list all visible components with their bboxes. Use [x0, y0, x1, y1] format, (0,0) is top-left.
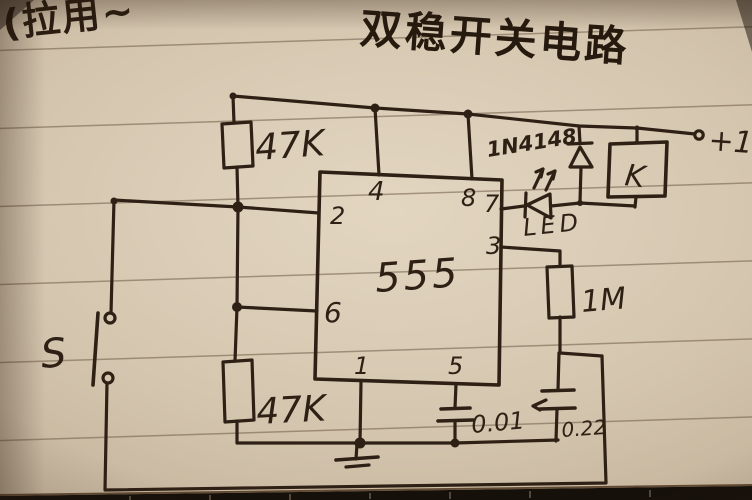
wire-r2-top-stub	[235, 307, 237, 361]
circuit-schematic: 47K 47K 1M 555 2 4 8 7 3 6 1 5	[0, 0, 752, 500]
ground-bar-1	[336, 457, 378, 460]
ic-pin3-label: 3	[486, 232, 501, 260]
switch-lever	[93, 313, 98, 385]
resistor-r1-label: 47K	[254, 123, 328, 169]
resistor-r1-body	[222, 122, 253, 168]
resistor-r2: 47K	[223, 360, 329, 433]
c1-plate-top	[441, 408, 470, 409]
wire-pin1-drop	[360, 381, 361, 443]
diode-triangle	[570, 147, 592, 167]
junction-dot	[355, 438, 366, 449]
led-label: LED	[522, 208, 584, 242]
junction-dot	[464, 110, 473, 119]
junction-dot	[451, 439, 460, 448]
ic-pin6-label: 6	[324, 296, 342, 329]
diode-bottom-stub	[580, 167, 581, 202]
junction-dot	[233, 202, 244, 213]
diode-label: 1N4148	[485, 124, 578, 162]
push-switch: S	[39, 313, 115, 385]
led: LED	[501, 169, 635, 242]
resistor-r3: 1M	[547, 266, 628, 320]
c2-plate-top	[542, 390, 574, 391]
junction-dot	[577, 200, 583, 206]
corner-shadow-top-right	[736, 0, 752, 52]
wire-pin3-to-r3	[501, 247, 560, 266]
led-wire-out	[551, 203, 635, 206]
resistor-r3-body	[547, 266, 574, 318]
diode-top-stub	[579, 126, 580, 143]
ic-pin5-label: 5	[448, 352, 463, 380]
notebook-page: (拉用~ 双稳开关电路 47K	[0, 0, 752, 500]
wire-switch-to-node	[111, 200, 238, 313]
junction-dot	[635, 126, 640, 131]
wire-node-to-pin6	[237, 307, 317, 311]
ic-pin8-label: 8	[461, 184, 476, 212]
wire-pin5-drop	[455, 384, 456, 408]
wire-pin8-drop	[468, 114, 472, 179]
wire-node-vertical	[237, 207, 238, 307]
switch-top-terminal	[105, 313, 115, 323]
junction-dot	[230, 93, 237, 100]
junction-dot	[111, 198, 118, 205]
supply-terminal-circle	[695, 131, 703, 139]
ground-bar-2	[346, 465, 369, 467]
supply-terminal: +12	[695, 123, 752, 162]
ic-555: 555 2 4 8 7 3 6 1 5	[315, 172, 502, 385]
c2-bottom-stub	[556, 409, 557, 441]
wire-r1-bottom-stub	[237, 167, 238, 207]
wire-node-to-pin2	[238, 207, 319, 213]
wire-r1-top-stub	[233, 96, 234, 123]
supply-label: +12	[707, 123, 752, 162]
wire-pin4-drop	[375, 108, 379, 175]
resistor-r1: 47K	[222, 122, 328, 169]
switch-label: S	[39, 330, 68, 378]
resistor-r2-body	[223, 360, 254, 422]
ic-pin1-label: 1	[354, 352, 369, 380]
ic-555-label: 555	[373, 250, 461, 302]
c2-label: 0.22	[561, 415, 607, 442]
junction-dot	[232, 302, 242, 312]
led-emission-arrow-2	[546, 171, 555, 190]
wire-nodex-branch	[560, 353, 602, 356]
junction-dot	[371, 104, 380, 113]
c1-label: 0.01	[470, 406, 526, 439]
resistor-r3-label: 1M	[580, 281, 628, 320]
capacitor-c2: 0.22	[533, 353, 607, 442]
resistor-r2-label: 47K	[255, 388, 329, 433]
relay-label: K	[623, 158, 649, 195]
c2-top-stub	[558, 353, 559, 390]
switch-bottom-terminal	[103, 373, 113, 383]
ic-pin7-label: 7	[484, 190, 500, 218]
ic-pin4-label: 4	[368, 177, 385, 207]
led-emission-arrow-1	[534, 169, 543, 188]
corner-shadow-top-left	[0, 0, 34, 30]
relay-bottom-stub	[635, 197, 636, 207]
capacitor-c1: 0.01	[438, 406, 526, 443]
ic-pin2-label: 2	[330, 202, 345, 230]
led-wire-in	[501, 206, 524, 209]
relay-k: K	[608, 128, 667, 207]
